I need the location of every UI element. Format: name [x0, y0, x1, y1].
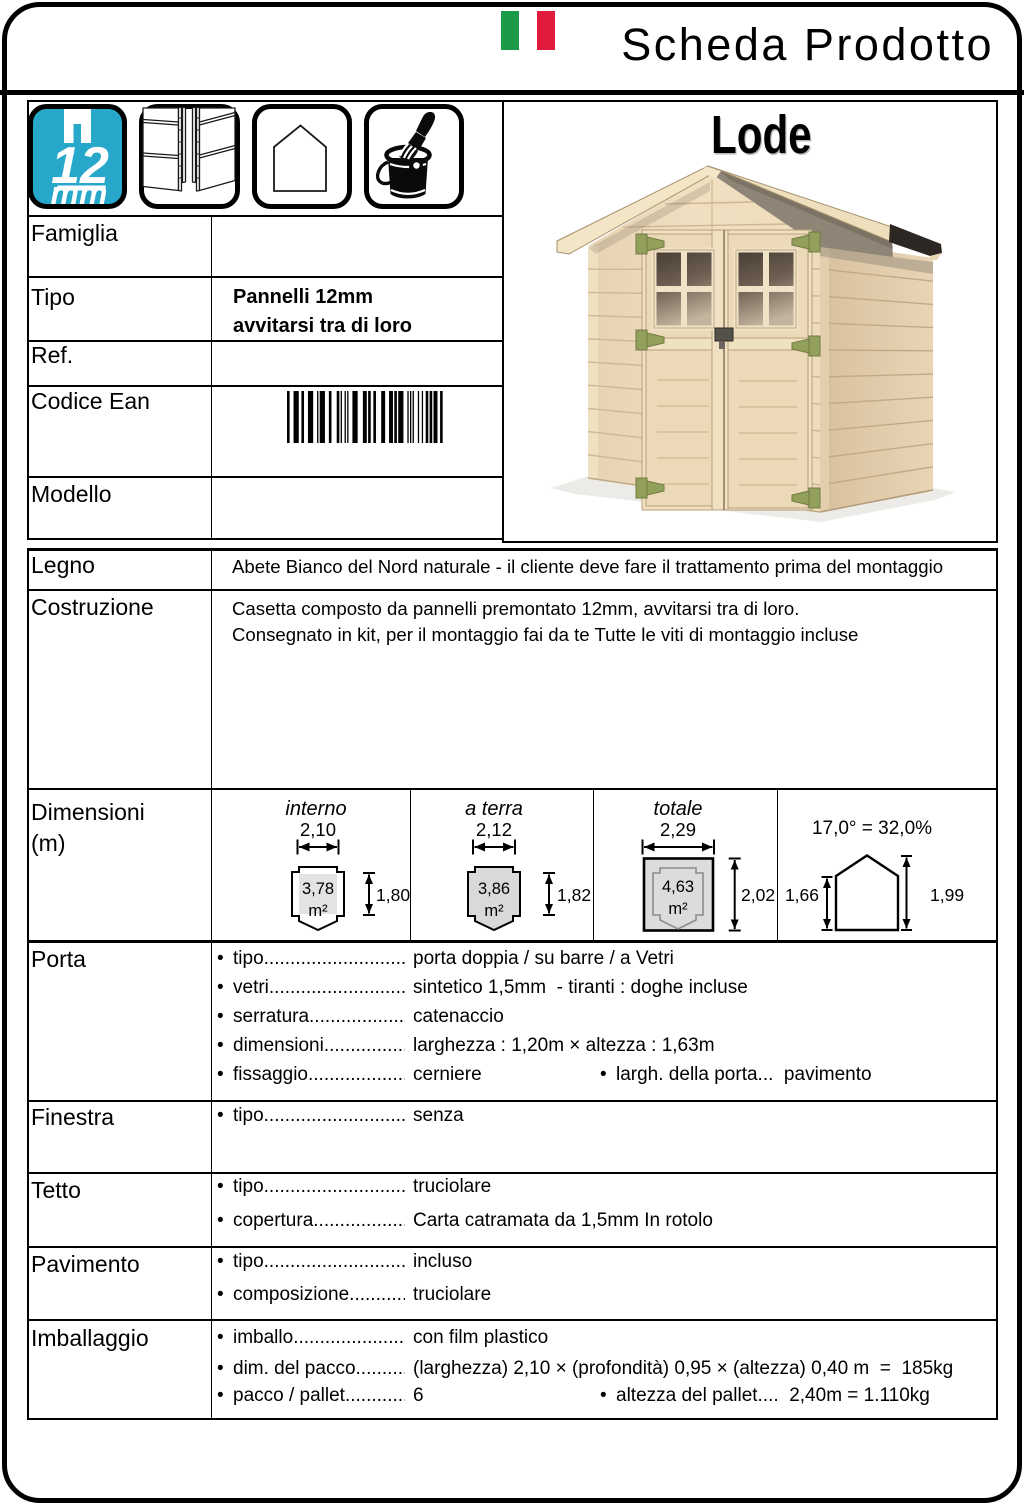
svg-text:2,10: 2,10 — [300, 819, 336, 840]
svg-text:4,63: 4,63 — [662, 878, 694, 896]
svg-text:totale: totale — [654, 798, 703, 820]
svg-text:m²: m² — [484, 902, 504, 920]
svg-text:2,29: 2,29 — [660, 819, 696, 840]
svg-text:1,66: 1,66 — [785, 885, 819, 905]
svg-text:1,80: 1,80 — [376, 885, 410, 905]
svg-text:2,02: 2,02 — [741, 885, 775, 905]
svg-text:2,12: 2,12 — [476, 819, 512, 840]
svg-text:mm: mm — [51, 175, 108, 209]
svg-text:1,82: 1,82 — [557, 885, 591, 905]
svg-text:interno: interno — [285, 798, 346, 820]
svg-text:m²: m² — [308, 902, 328, 920]
svg-text:1,99: 1,99 — [930, 885, 964, 905]
svg-text:a terra: a terra — [465, 798, 523, 820]
svg-text:17,0° = 32,0%: 17,0° = 32,0% — [812, 818, 932, 839]
svg-text:3,86: 3,86 — [478, 880, 510, 898]
svg-text:3,78: 3,78 — [302, 880, 334, 898]
svg-text:m²: m² — [668, 900, 688, 918]
